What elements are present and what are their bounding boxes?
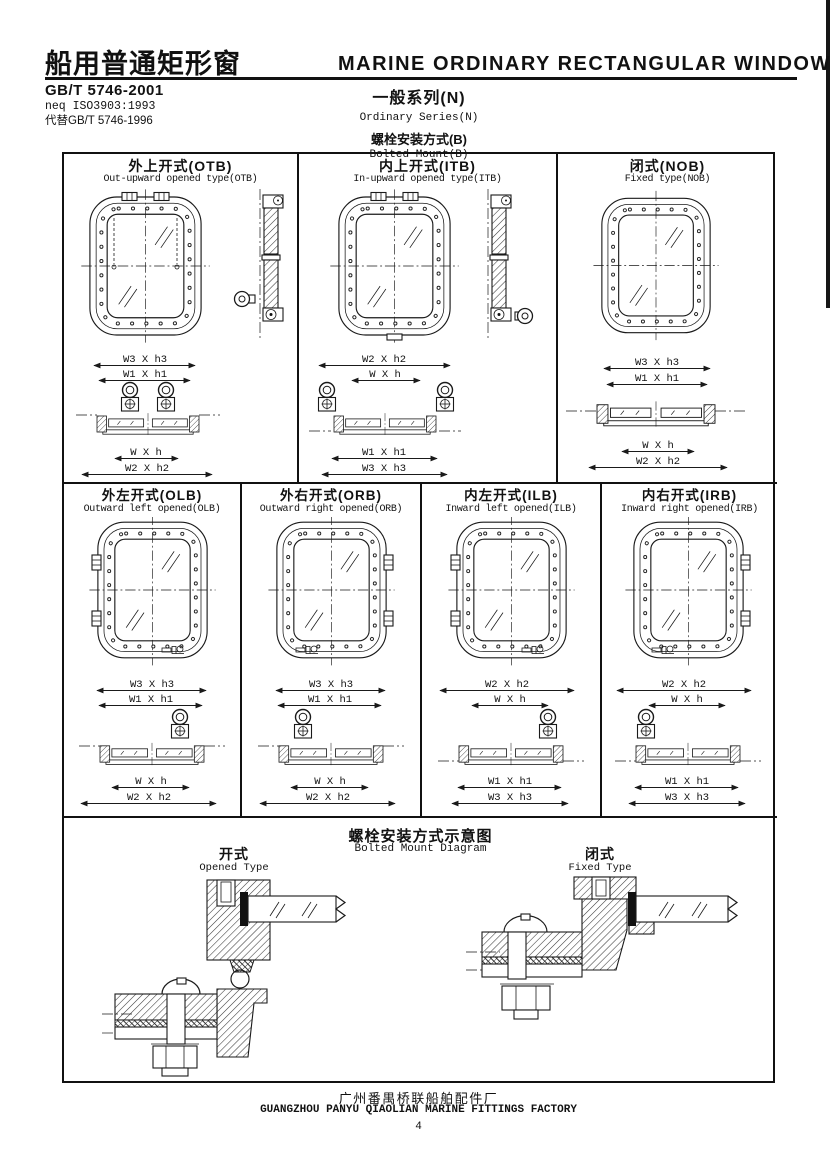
cell-title-en: Inward right opened(IRB) <box>602 504 777 516</box>
olb-bottom-section <box>100 743 204 765</box>
dim-label: W X h <box>494 694 526 706</box>
cell-title-zh: 闭式(NOB) <box>558 158 777 174</box>
eyebolt-icon <box>122 383 139 412</box>
otb-bottom-section <box>97 413 199 435</box>
cell-title-zh: 外上开式(OTB) <box>64 158 297 174</box>
series-name-zh: 一般系列(N) <box>219 84 619 108</box>
cell-title-zh: 外右开式(ORB) <box>242 488 420 504</box>
drawing-table: 外上开式(OTB) Out-upward opened type(OTB) W3… <box>62 152 775 1083</box>
page-number: 4 <box>62 1121 775 1133</box>
dim-label: W3 X h3 <box>488 792 532 804</box>
cell-title-en: Outward left opened(OLB) <box>64 504 240 516</box>
nob-drawing: W3 X h3 W1 X h1 W X h W2 X h2 <box>558 189 775 483</box>
fixed-type-label-zh: 闭式 <box>530 844 670 864</box>
dim-label: W1 X h1 <box>635 373 679 385</box>
orb-drawing: W3 X h3 W1 X h1 W X h W2 X h2 <box>242 517 420 817</box>
series-block: 一般系列(N) Ordinary Series(N) 螺栓安装方式(B) Bol… <box>219 84 619 161</box>
ilb-drawing: W2 X h2 W X h W1 X h1 W3 X h3 <box>422 517 600 817</box>
scan-edge-artifact <box>826 0 830 308</box>
standard-replaces: 代替GB/T 5746-1996 <box>45 112 153 128</box>
page-title-en: MARINE ORDINARY RECTANGULAR WINDOW <box>338 53 797 76</box>
cell-title-en: Fixed type(NOB) <box>558 174 777 186</box>
opened-type-cross-section <box>102 872 394 1082</box>
dim-label: W3 X h3 <box>362 463 406 475</box>
dim-label: W1 X h1 <box>488 776 532 788</box>
dim-label: W X h <box>135 776 167 788</box>
cell-olb: 外左开式(OLB) Outward left opened(OLB) W3 X … <box>64 484 242 818</box>
eyebolt-icon <box>319 383 336 412</box>
orb-bottom-section <box>279 743 383 765</box>
dim-label: W2 X h2 <box>362 354 406 366</box>
page-title-zh: 船用普通矩形窗 <box>45 42 241 81</box>
cell-ilb: 内左开式(ILB) Inward left opened(ILB) W2 X h… <box>422 484 602 818</box>
eyebolt-icon <box>638 710 655 739</box>
fixed-type-cross-section <box>464 872 754 1032</box>
dim-label: W3 X h3 <box>130 679 174 691</box>
dim-label: W3 X h3 <box>123 354 167 366</box>
itb-side-section <box>488 189 511 341</box>
header-rule <box>45 77 797 80</box>
dim-label: W X h <box>314 776 346 788</box>
eyebolt-icon <box>172 710 189 739</box>
document-page: 船用普通矩形窗 MARINE ORDINARY RECTANGULAR WIND… <box>0 0 830 1175</box>
opened-type-label-zh: 开式 <box>164 844 304 864</box>
cell-title-en: Outward right opened(ORB) <box>242 504 420 516</box>
latch-icon <box>296 646 318 654</box>
standard-code: GB/T 5746-2001 <box>45 82 164 99</box>
latch-icon <box>652 646 674 654</box>
cell-nob: 闭式(NOB) Fixed type(NOB) W3 X h3 W1 X h1 … <box>558 154 777 484</box>
dim-label: W2 X h2 <box>485 679 529 691</box>
irb-bottom-section <box>636 743 740 765</box>
cell-title-en: In-upward opened type(ITB) <box>299 174 556 186</box>
dim-label: W3 X h3 <box>665 792 709 804</box>
series-name-en: Ordinary Series(N) <box>219 112 619 124</box>
dim-label: W1 X h1 <box>308 694 352 706</box>
olb-drawing: W3 X h3 W1 X h1 W X h W2 X h2 <box>64 517 240 817</box>
dim-label: W2 X h2 <box>636 456 680 468</box>
irb-drawing: W2 X h2 W X h W1 X h1 W3 X h3 <box>602 517 775 817</box>
cell-title-zh: 内左开式(ILB) <box>422 488 600 504</box>
dim-label: W2 X h2 <box>306 792 350 804</box>
cell-title-zh: 内右开式(IRB) <box>602 488 777 504</box>
cell-irb: 内右开式(IRB) Inward right opened(IRB) W2 X … <box>602 484 777 818</box>
eyebolt-icon <box>437 383 454 412</box>
cell-title-en: Inward left opened(ILB) <box>422 504 600 516</box>
cell-itb: 内上开式(ITB) In-upward opened type(ITB) W2 … <box>299 154 558 484</box>
dim-label: W3 X h3 <box>635 357 679 369</box>
bolted-mount-section: 螺栓安装方式示意图 Bolted Mount Diagram 开式 Opened… <box>64 818 777 1085</box>
dim-label: W1 X h1 <box>129 694 173 706</box>
dim-label: W3 X h3 <box>309 679 353 691</box>
dim-label: W1 X h1 <box>362 447 406 459</box>
itb-bottom-section <box>334 413 436 435</box>
eyebolt-icon <box>540 710 557 739</box>
dim-label: W X h <box>369 369 401 381</box>
eyebolt-icon <box>158 383 175 412</box>
cell-title-zh: 外左开式(OLB) <box>64 488 240 504</box>
dim-label: W X h <box>671 694 703 706</box>
dim-label: W1 X h1 <box>665 776 709 788</box>
cell-title-zh: 内上开式(ITB) <box>299 158 556 174</box>
otb-drawing: W3 X h3 W1 X h1 W X h W2 X h2 <box>64 189 297 483</box>
cell-orb: 外右开式(ORB) Outward right opened(ORB) W3 X… <box>242 484 422 818</box>
dim-label: W X h <box>642 440 674 452</box>
otb-side-section <box>260 189 283 341</box>
ilb-bottom-section <box>459 743 563 765</box>
nob-bottom-section <box>597 401 715 426</box>
dim-label: W2 X h2 <box>662 679 706 691</box>
factory-name-en: GUANGZHOU PANYU QIAOLIAN MARINE FITTINGS… <box>62 1104 775 1116</box>
eyebolt-icon <box>295 710 312 739</box>
dim-label: W2 X h2 <box>125 463 169 475</box>
cell-otb: 外上开式(OTB) Out-upward opened type(OTB) W3… <box>64 154 299 484</box>
itb-drawing: W2 X h2 W X h W1 X h1 W3 X h3 <box>299 189 556 483</box>
dim-label: W X h <box>130 447 162 459</box>
mount-name-zh: 螺栓安装方式(B) <box>219 129 619 148</box>
dim-label: W1 X h1 <box>123 369 167 381</box>
cell-title-en: Out-upward opened type(OTB) <box>64 174 297 186</box>
dim-label: W2 X h2 <box>127 792 171 804</box>
